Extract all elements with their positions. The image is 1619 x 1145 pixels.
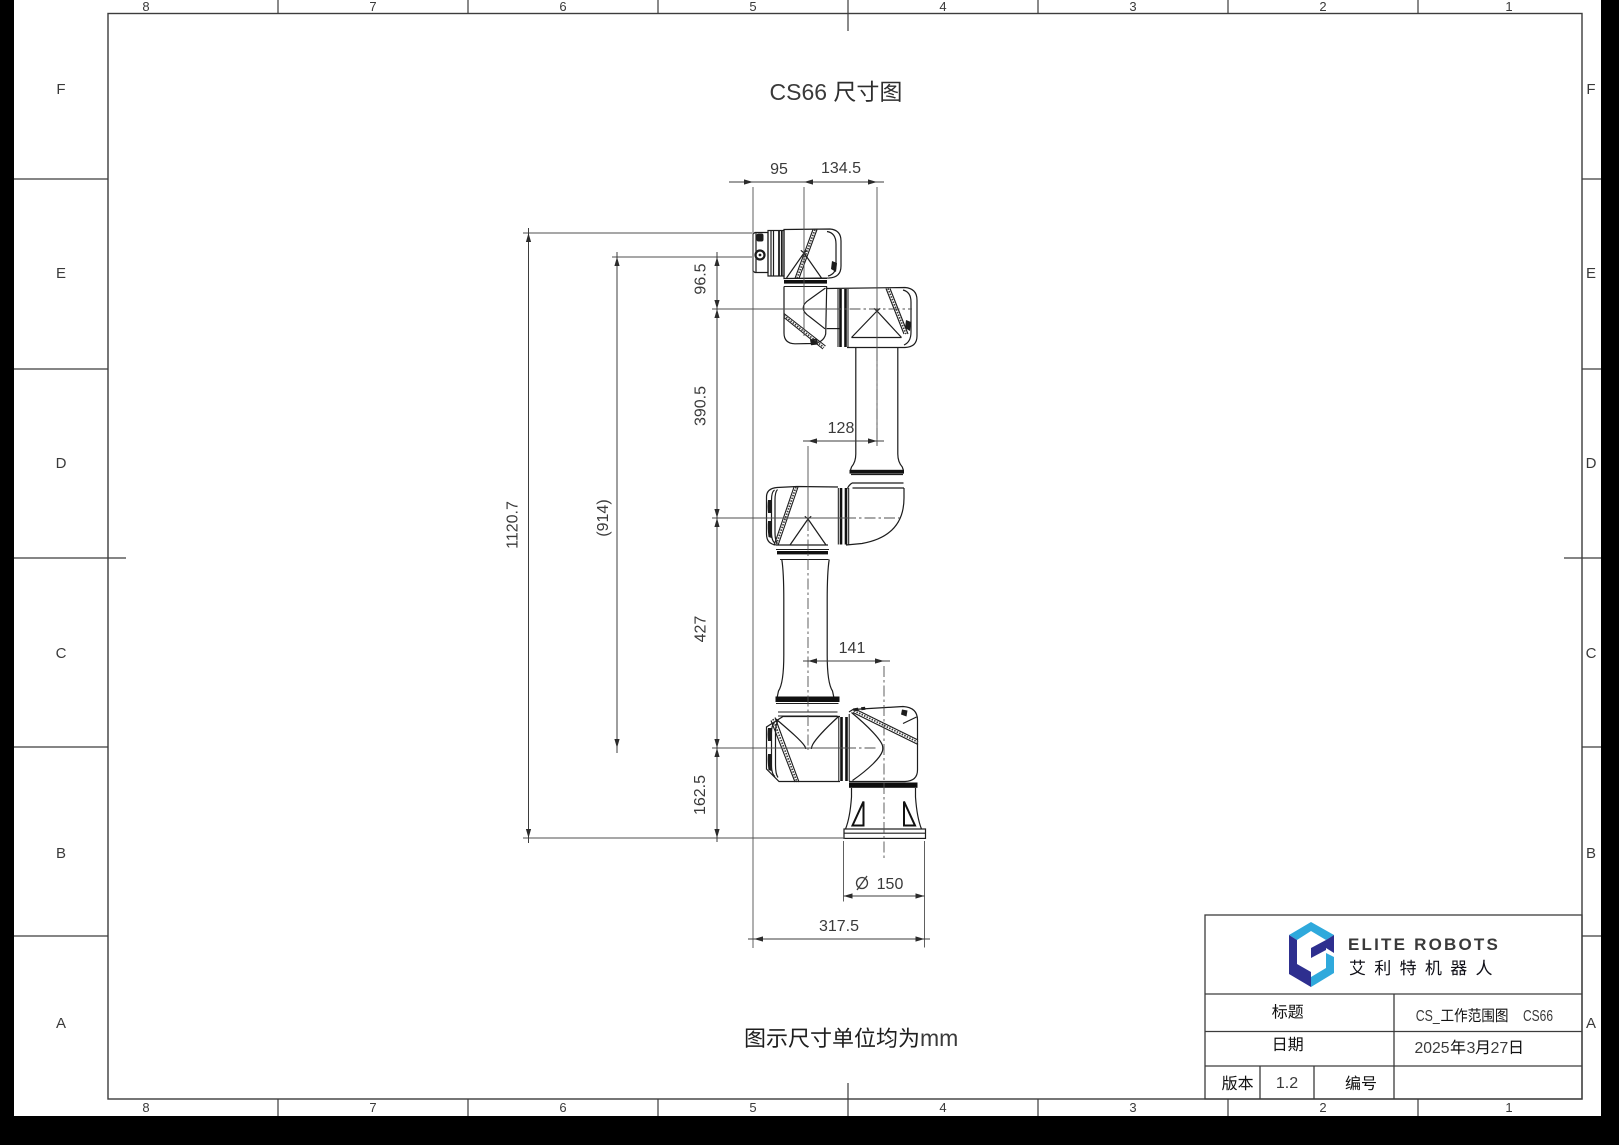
svg-text:150: 150 <box>877 876 904 893</box>
svg-text:7: 7 <box>369 1100 376 1115</box>
svg-text:5: 5 <box>749 0 756 14</box>
svg-text:A: A <box>56 1015 66 1032</box>
svg-text:CS66: CS66 <box>770 79 828 105</box>
svg-text:4: 4 <box>939 1100 946 1115</box>
svg-text:3: 3 <box>1467 1040 1476 1057</box>
svg-text:3: 3 <box>1129 1100 1136 1115</box>
svg-text:317.5: 317.5 <box>819 918 859 935</box>
svg-text:2: 2 <box>1319 0 1326 14</box>
svg-text:8: 8 <box>142 1100 149 1115</box>
svg-text:3: 3 <box>1129 0 1136 14</box>
svg-text:mm: mm <box>920 1025 958 1051</box>
svg-text:B: B <box>56 845 66 862</box>
svg-text:4: 4 <box>939 0 946 14</box>
svg-text:7: 7 <box>369 0 376 14</box>
svg-text:D: D <box>56 455 67 472</box>
svg-text:1: 1 <box>1505 1100 1512 1115</box>
svg-text:C: C <box>56 645 67 662</box>
svg-text:1120.7: 1120.7 <box>505 501 522 549</box>
svg-text:ELITE ROBOTS: ELITE ROBOTS <box>1348 935 1500 954</box>
svg-text:2025: 2025 <box>1415 1040 1450 1057</box>
svg-text:E: E <box>1586 265 1596 282</box>
svg-text:B: B <box>1586 845 1596 862</box>
svg-text:C: C <box>1586 645 1597 662</box>
svg-text:F: F <box>56 81 65 98</box>
svg-text:CS66: CS66 <box>1523 1008 1553 1025</box>
svg-text:141: 141 <box>839 640 866 657</box>
svg-text:27: 27 <box>1491 1040 1509 1057</box>
svg-text:6: 6 <box>559 1100 566 1115</box>
svg-text:A: A <box>1586 1015 1596 1032</box>
svg-text:162.5: 162.5 <box>692 775 709 815</box>
svg-text:427: 427 <box>693 616 710 643</box>
svg-text:1: 1 <box>1505 0 1512 14</box>
svg-text:F: F <box>1586 81 1595 98</box>
svg-text:390.5: 390.5 <box>693 386 710 426</box>
svg-text:CS_: CS_ <box>1416 1008 1441 1025</box>
svg-text:1.2: 1.2 <box>1276 1075 1298 1092</box>
svg-text:128: 128 <box>828 420 855 437</box>
svg-text:(914): (914) <box>595 499 612 536</box>
svg-text:95: 95 <box>770 161 788 178</box>
svg-text:6: 6 <box>559 0 566 14</box>
svg-text:134.5: 134.5 <box>821 160 861 177</box>
svg-text:8: 8 <box>142 0 149 14</box>
svg-text:96.5: 96.5 <box>693 263 710 294</box>
svg-text:5: 5 <box>749 1100 756 1115</box>
svg-text:D: D <box>1586 455 1597 472</box>
svg-text:E: E <box>56 265 66 282</box>
svg-text:2: 2 <box>1319 1100 1326 1115</box>
